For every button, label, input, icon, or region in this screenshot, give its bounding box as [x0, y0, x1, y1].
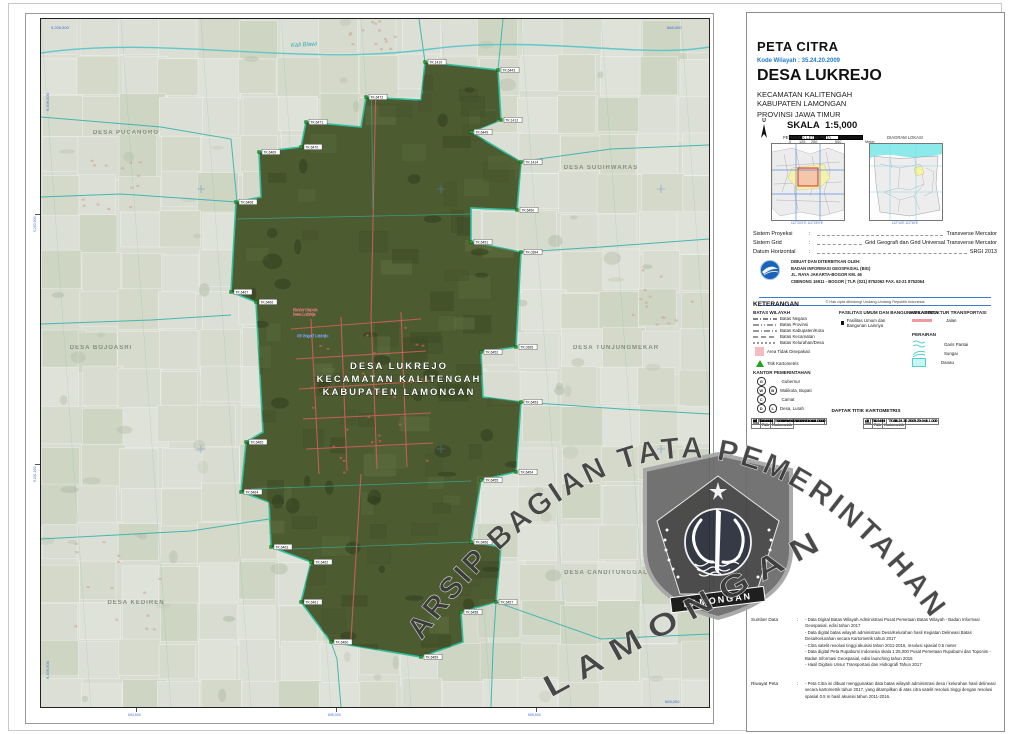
tk-point-label: TK.0395: [520, 345, 533, 349]
map-coordinate-label: 9,199,500: [45, 660, 50, 679]
tk-point-label: TK.6464: [245, 490, 258, 494]
inset-left-coords: 112°20'0"E 112°25'0"E: [771, 221, 843, 225]
neighbor-village-label: DESA SUGIHWARAS: [564, 165, 638, 171]
tk-point-label: TK.6470: [305, 145, 318, 149]
black-square-icon: [841, 321, 844, 325]
neighbor-village-label: DESA PUCANGRO: [93, 130, 159, 136]
sumber-data-items: - Data Digital Batas Wilayah Administras…: [805, 617, 997, 669]
table-row: 40TK.6465TK.35.24.20.2009.20.040.1.000: [751, 418, 827, 425]
tk-point-label: TK.6466: [260, 300, 273, 304]
pink-area-swatch: [755, 347, 764, 356]
inset-left-title: PETUNJUK LETAK PETA: [771, 135, 843, 140]
frame-tick: [536, 708, 537, 712]
datum-row: Datum Horizontal:SRGI 2013: [753, 247, 997, 255]
inset-map-location-guide: [771, 143, 845, 221]
sumber-data-label: Sumber Data: [751, 617, 778, 622]
inset-right-graphic: [870, 144, 942, 220]
map-frame: TK.1410TK.6443TK.1412TK.6449TK.1414TK.64…: [25, 13, 714, 724]
legend-item-titik-kartometris: Titik Kartometris: [756, 360, 799, 367]
inset-right-coords: 112°10'E 112°40'E: [869, 221, 941, 225]
table-row: 48TK.6473TK.35.24.20.2009.20.048.1.000: [863, 418, 939, 425]
village-title: DESA LUKREJO: [757, 67, 882, 85]
legend-infra-header: INFRASTRUKTUR TRANSPORTASI: [910, 310, 986, 315]
frame-tick-label: 9,201,000: [33, 466, 37, 482]
kabupaten-label: KABUPATEN LAMONGAN: [757, 99, 846, 108]
inset-right-title: DIAGRAM LOKASI: [869, 135, 941, 140]
map-canvas: TK.1410TK.6443TK.1412TK.6449TK.1414TK.64…: [40, 18, 710, 708]
grid-row: Sistem Grid:Grid Geografi dan Grid Unive…: [753, 238, 997, 246]
info-panel: PETA CITRA Kode Wilayah : 35.24.20.2009 …: [746, 12, 1005, 732]
poi-label: Desa Lukrejo: [293, 312, 316, 316]
tk-point-label: TK.6471: [310, 120, 323, 124]
tk-point-label: TK.0394: [525, 250, 538, 254]
legend-item-walikota-bupati: W B Walikota, Bupati: [757, 386, 812, 395]
tk-point-label: TK.6450: [521, 208, 534, 212]
north-arrow-icon: [759, 124, 769, 140]
list-item: - Peta Citra ini dibuat menggunakan data…: [805, 681, 997, 700]
village-center-label: DESA LUKREJO: [350, 361, 448, 372]
legend-item-area-tidak-disepakati: Area Tidak Disepakati: [755, 347, 810, 356]
tk-point-label: TK.1410: [429, 60, 442, 64]
tk-point-label: TK.6453: [525, 400, 538, 404]
frame-tick: [35, 464, 40, 465]
satellite-map: TK.1410TK.6443TK.1412TK.6449TK.1414TK.64…: [41, 19, 709, 707]
neighbor-village-label: DESA CANDITUNGGAL: [564, 570, 648, 576]
map-sheet: TK.1410TK.6443TK.1412TK.6449TK.1414TK.64…: [0, 0, 1009, 734]
frame-tick: [35, 214, 40, 215]
map-type-title: PETA CITRA: [757, 39, 839, 54]
map-coordinate-label: 668,000: [665, 699, 680, 704]
riwayat-peta-items: - Peta Citra ini dibuat menggunakan data…: [805, 681, 997, 700]
tk-point-label: TK.6462: [315, 560, 328, 564]
publisher-contact: CIBINONG 16911 - BOGOR | TLP. (021) 8752…: [791, 279, 991, 286]
tk-point-label: TK.6467: [235, 290, 248, 294]
tk-point-label: TK.6452: [485, 350, 498, 354]
tk-point-label: TK.1412: [505, 118, 518, 122]
neighbor-village-label: DESA KEDIREN: [107, 600, 164, 606]
publisher-block: DIBUAT DAN DITERBITKAN OLEH: BADAN INFOR…: [791, 259, 991, 285]
region-code: Kode Wilayah : 35.24.20.2009: [757, 58, 840, 64]
map-coordinate-label: 9,206,000: [45, 92, 50, 111]
poi-label: SD Negeri Lukrejo: [297, 334, 329, 338]
legend-item-garis-pantai: Garis Pantai: [912, 340, 968, 348]
legend-item-batas-negara: Batas Negara: [753, 316, 807, 321]
riwayat-peta-label: Riwayat Peta: [751, 681, 778, 686]
legend-item-fasilitas: Fasilitas Umum dan Bangunan Lainnya: [841, 318, 903, 328]
tk-point-label: TK.6459: [425, 655, 438, 659]
legend-item-camat: C Camat: [757, 395, 794, 404]
frame-tick-label: 9,203,000: [33, 216, 37, 232]
tk-point-label: TK.6443: [502, 68, 515, 72]
frame-tick-label: 695,000: [328, 713, 341, 717]
frame-tick: [336, 708, 337, 712]
tk-point-label: TK.6458: [465, 610, 478, 614]
legend-item-batas-provinsi: Batas Provinsi: [753, 322, 808, 327]
big-agency-logo: [759, 259, 781, 286]
tk-point-label: TK.1414: [525, 160, 538, 164]
map-coordinate-label: 9,206,500: [51, 25, 70, 30]
tk-point-label: TK.6463: [275, 545, 288, 549]
green-triangle-icon: [756, 360, 764, 367]
legend-title: KETERANGAN: [753, 301, 799, 308]
legend-item-danau: Danau: [912, 358, 954, 367]
legend-item-gubernur: G Gubernur: [757, 377, 800, 386]
tk-point-label: TK.6468: [240, 200, 253, 204]
legend-kantor-header: KANTOR PEMERINTAHAN: [753, 370, 811, 375]
neighbor-village-label: DESA BOJOASRI: [70, 345, 132, 351]
frame-tick: [136, 708, 137, 712]
lake-swatch: [912, 358, 926, 367]
north-arrow: U: [757, 118, 771, 140]
legend-item-jalan: Jalan: [912, 318, 957, 323]
tk-point-label: TK.6465: [250, 440, 263, 444]
list-item: - Hasil Digitasi Unsur Transportasi dan …: [805, 662, 997, 668]
village-center-label: KECAMATAN KALITENGAH: [317, 374, 482, 385]
tk-point-label: TK.6461: [305, 600, 318, 604]
tk-point-label: TK.6472: [370, 95, 383, 99]
projection-row: Sistem Proyeksi:Transverse Mercator: [753, 229, 997, 237]
legend-item-batas-kecamatan: Batas Kecamatan: [753, 334, 815, 339]
frame-tick-label: 695,500: [528, 713, 541, 717]
inset-map-location-diagram: [869, 143, 943, 221]
legend-item-batas-desa: Batas Kelurahan/Desa: [753, 340, 824, 345]
legend-item-batas-kabupaten: Batas Kabupaten/Kota: [753, 328, 824, 333]
tk-point-label: TK.6456: [475, 540, 488, 544]
road-swatch: [912, 319, 932, 322]
tk-point-label: TK.6449: [475, 130, 488, 134]
tk-point-label: TK.6451: [475, 240, 488, 244]
legend-perairan-header: PERAIRAN: [912, 332, 936, 337]
tk-point-label: TK.6469: [263, 150, 276, 154]
tk-point-label: TK.6460: [335, 640, 348, 644]
frame-tick-label: 694,500: [128, 713, 141, 717]
scale-title: SKALA 1:5,000: [787, 120, 857, 131]
inset-left-graphic: [772, 144, 844, 220]
legend-item-sungai: Sungai: [912, 349, 958, 357]
poi-label: Kantor Kepala: [293, 308, 318, 312]
tk-point-label: TK.6457: [500, 600, 513, 604]
globe-icon: [759, 259, 781, 281]
village-center-label: KABUPATEN LAMONGAN: [323, 387, 476, 398]
list-item: - Data Digital Batas Wilayah Administras…: [805, 617, 997, 630]
list-item: - Data digital Peta Rupabumi Indonesia s…: [805, 649, 997, 662]
neighbor-village-label: DESA TUNJUNGMEKAR: [573, 345, 659, 351]
tk-point-label: TK.6454: [520, 470, 533, 474]
list-item: - Data digital batas wilayah administras…: [805, 630, 997, 643]
tk-point-label: TK.6455: [485, 478, 498, 482]
kecamatan-label: KECAMATAN KALITENGAH: [757, 90, 852, 99]
map-coordinate-label: 668,000: [667, 25, 682, 30]
legend-batas-header: BATAS WILAYAH: [753, 310, 790, 315]
kartometris-table-title: DAFTAR TITIK KARTOMETRIS: [747, 409, 985, 414]
